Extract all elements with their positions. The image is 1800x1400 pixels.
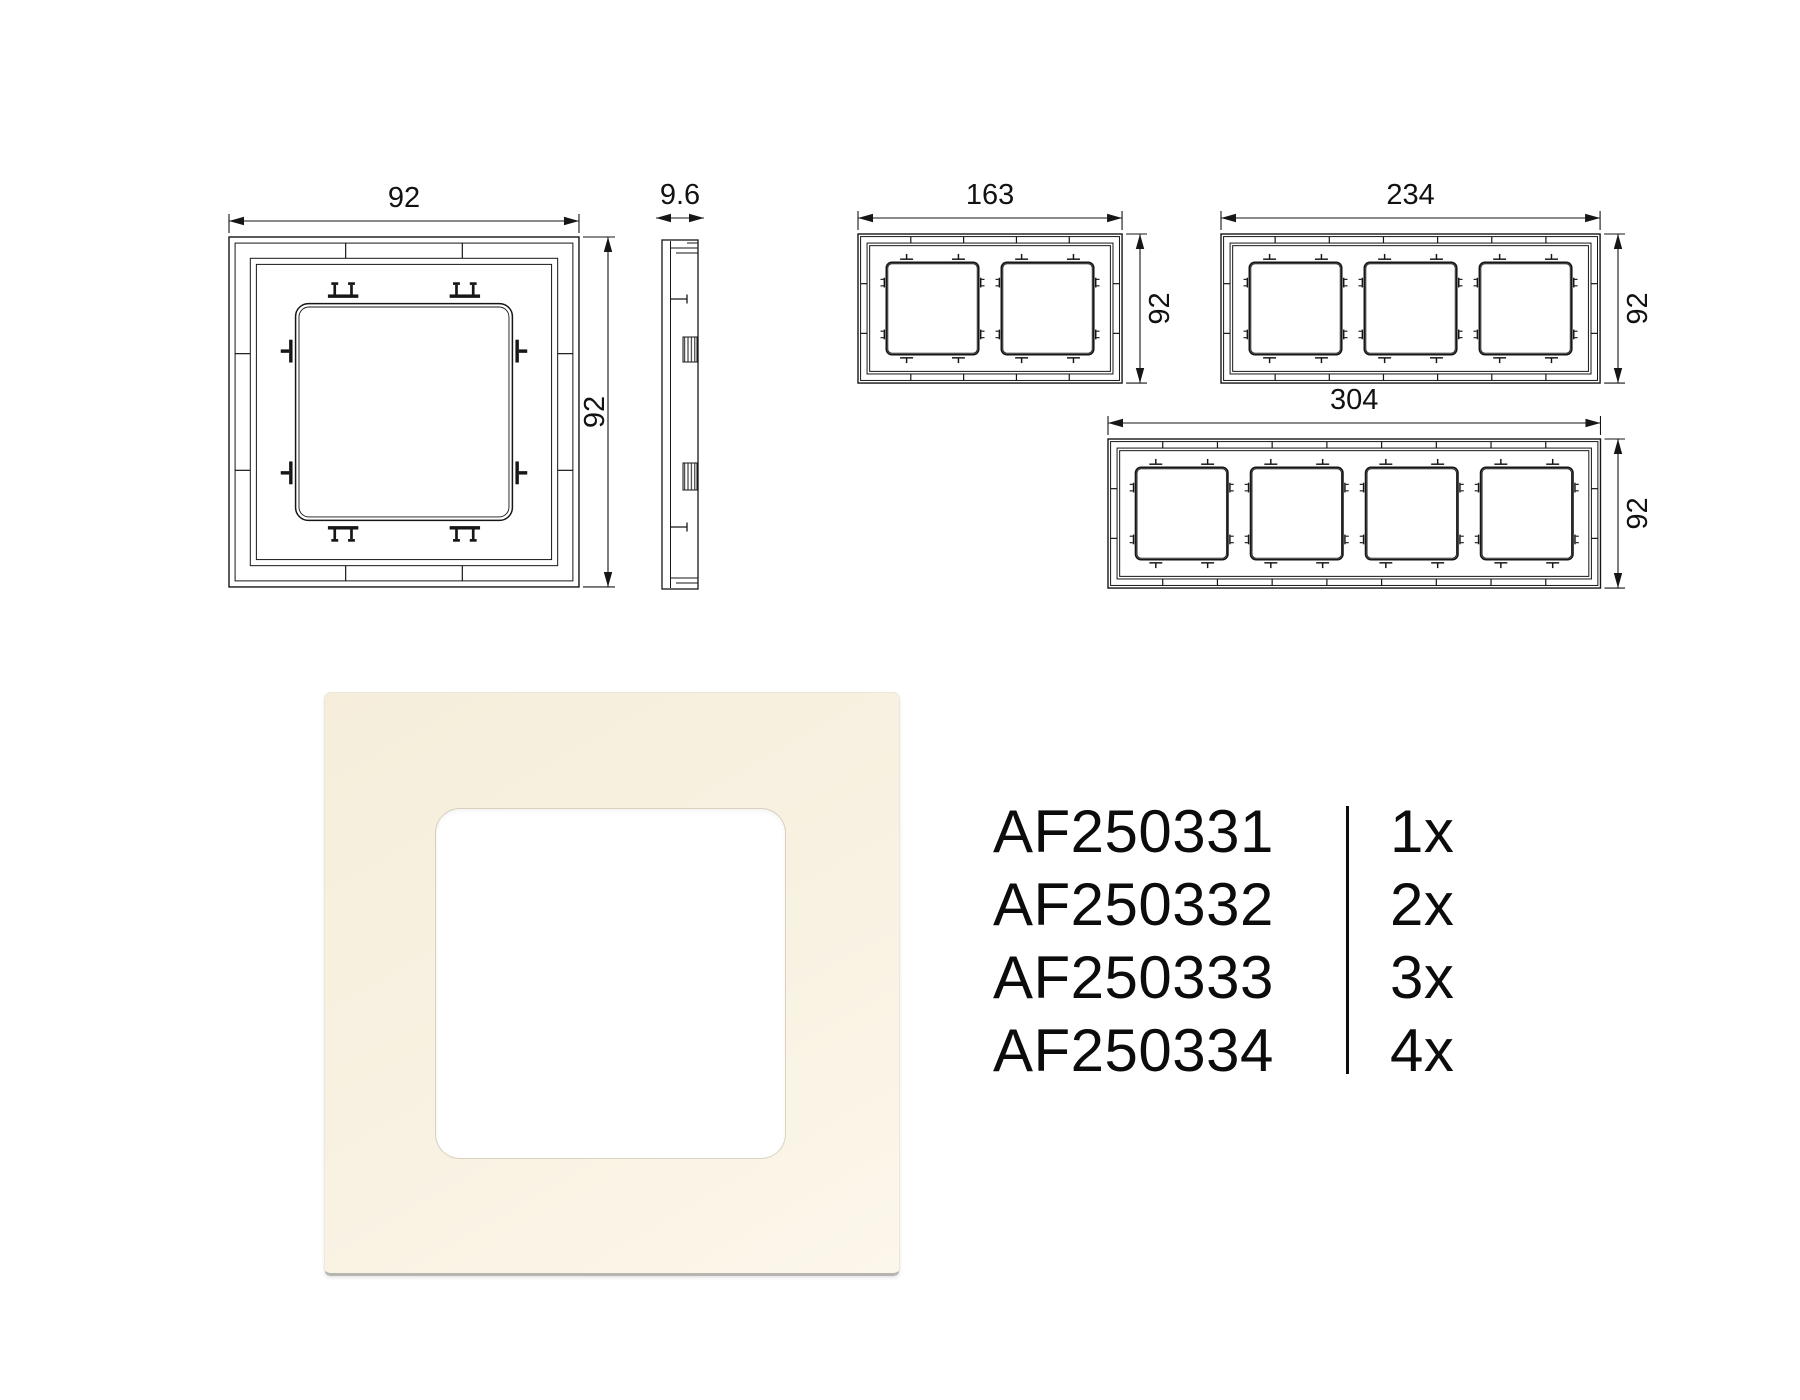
product-code: AF250332 (993, 868, 1274, 941)
product-code: AF250334 (993, 1014, 1274, 1087)
code-column: AF250331 AF250332 AF250333 AF250334 (993, 795, 1274, 1087)
quantity-column: 1x 2x 3x 4x (1390, 795, 1454, 1087)
product-photo-window (436, 809, 785, 1158)
one-gang-front-view (229, 237, 579, 587)
product-photo-frame (324, 692, 900, 1276)
frame-quantity: 1x (1390, 795, 1454, 868)
product-code: AF250333 (993, 941, 1274, 1014)
product-code: AF250331 (993, 795, 1274, 868)
spec-sheet: 92929.6163922349230492 AF250331 AF250332… (0, 0, 1800, 1400)
frame-side-view (662, 240, 698, 589)
dimension-label: 92 (1144, 292, 1176, 324)
dimension-label: 304 (1330, 384, 1378, 416)
three-gang-front-view (1221, 234, 1600, 383)
frame-quantity: 2x (1390, 868, 1454, 941)
dimension-label: 9.6 (660, 179, 700, 211)
technical-drawings: 92929.6163922349230492 (0, 0, 1800, 660)
frame-quantity: 3x (1390, 941, 1454, 1014)
dimension-label: 92 (388, 182, 420, 214)
codes-divider-line (1346, 806, 1349, 1074)
dimension-label: 92 (579, 396, 611, 428)
four-gang-front-view (1108, 439, 1600, 588)
dimension-label: 234 (1386, 179, 1434, 211)
dimension-label: 92 (1622, 497, 1654, 529)
frame-quantity: 4x (1390, 1014, 1454, 1087)
dimension-label: 163 (966, 179, 1014, 211)
dimension-label: 92 (1622, 292, 1654, 324)
two-gang-front-view (858, 234, 1122, 383)
